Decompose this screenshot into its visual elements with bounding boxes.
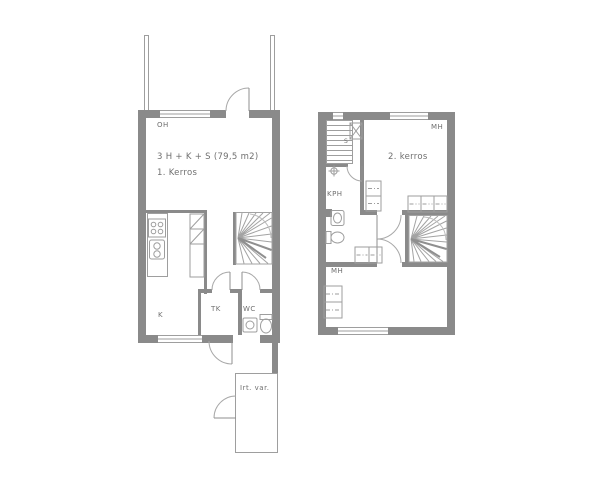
room-label-kitchen: K [158,311,163,319]
room-label-bedroom-bottom: MH [331,267,343,275]
room-label-vestibule: TK [211,305,221,313]
plan-title: 3 H + K + S (79,5 m2) [157,152,258,162]
room-label-wc: WC [243,305,256,313]
fridge-cabinet-icon [190,214,204,277]
kitchen-counter-icon [148,214,168,277]
room-label-bathroom: KPH [327,190,343,198]
wall [204,210,207,294]
bedroom-bottom-door-arc [377,239,401,263]
room-label-sauna: S [344,138,348,145]
window [160,110,210,118]
window [158,335,202,343]
window [338,327,388,335]
fixtures-overlay [0,0,600,480]
stove-icon [149,219,166,237]
room-label-bedroom-top: MH [431,123,443,131]
window [390,112,428,120]
wc-door-arc [242,272,260,290]
bedroom-top-door-arc [377,215,401,239]
wall [405,215,409,264]
wall [272,110,280,343]
wall [272,343,278,373]
balcony-post-right [270,35,275,111]
wc-toilet-icon [260,315,272,334]
wall [318,112,326,335]
floor1-label: 1. Kerros [157,168,197,178]
storage-door-arc [214,396,236,418]
wall [326,209,332,217]
stairs-floor2-icon [409,216,447,263]
door-opening [226,110,249,118]
storage-label: Irt. var. [240,384,270,392]
wc-sink-icon [243,318,257,332]
wall [260,289,272,293]
vestibule-door-arc [212,272,230,290]
wall [146,210,207,213]
balcony-door-arc [226,88,249,111]
entry-door-arc [209,341,232,364]
floorplan-canvas: OH 3 H + K + S (79,5 m2) 1. Kerros K TK … [0,0,600,480]
bathroom-sink-icon [331,211,344,226]
sauna-bench-icon [326,120,353,164]
wall [447,112,455,335]
wall [238,293,242,335]
wall [198,289,201,335]
wall [360,115,364,215]
wall [360,210,377,215]
kitchen-sink-icon [150,240,165,259]
room-label-living: OH [157,121,169,129]
stairs-floor1-icon [236,213,272,265]
door-opening [233,335,260,343]
wall [138,110,146,343]
floor2-label: 2. kerros [388,152,428,162]
bathroom-toilet-icon [326,232,344,244]
wall [233,212,236,265]
shower-icon [329,166,340,177]
closet-icon [324,181,447,318]
balcony-post-left [144,35,149,111]
window [333,112,343,120]
